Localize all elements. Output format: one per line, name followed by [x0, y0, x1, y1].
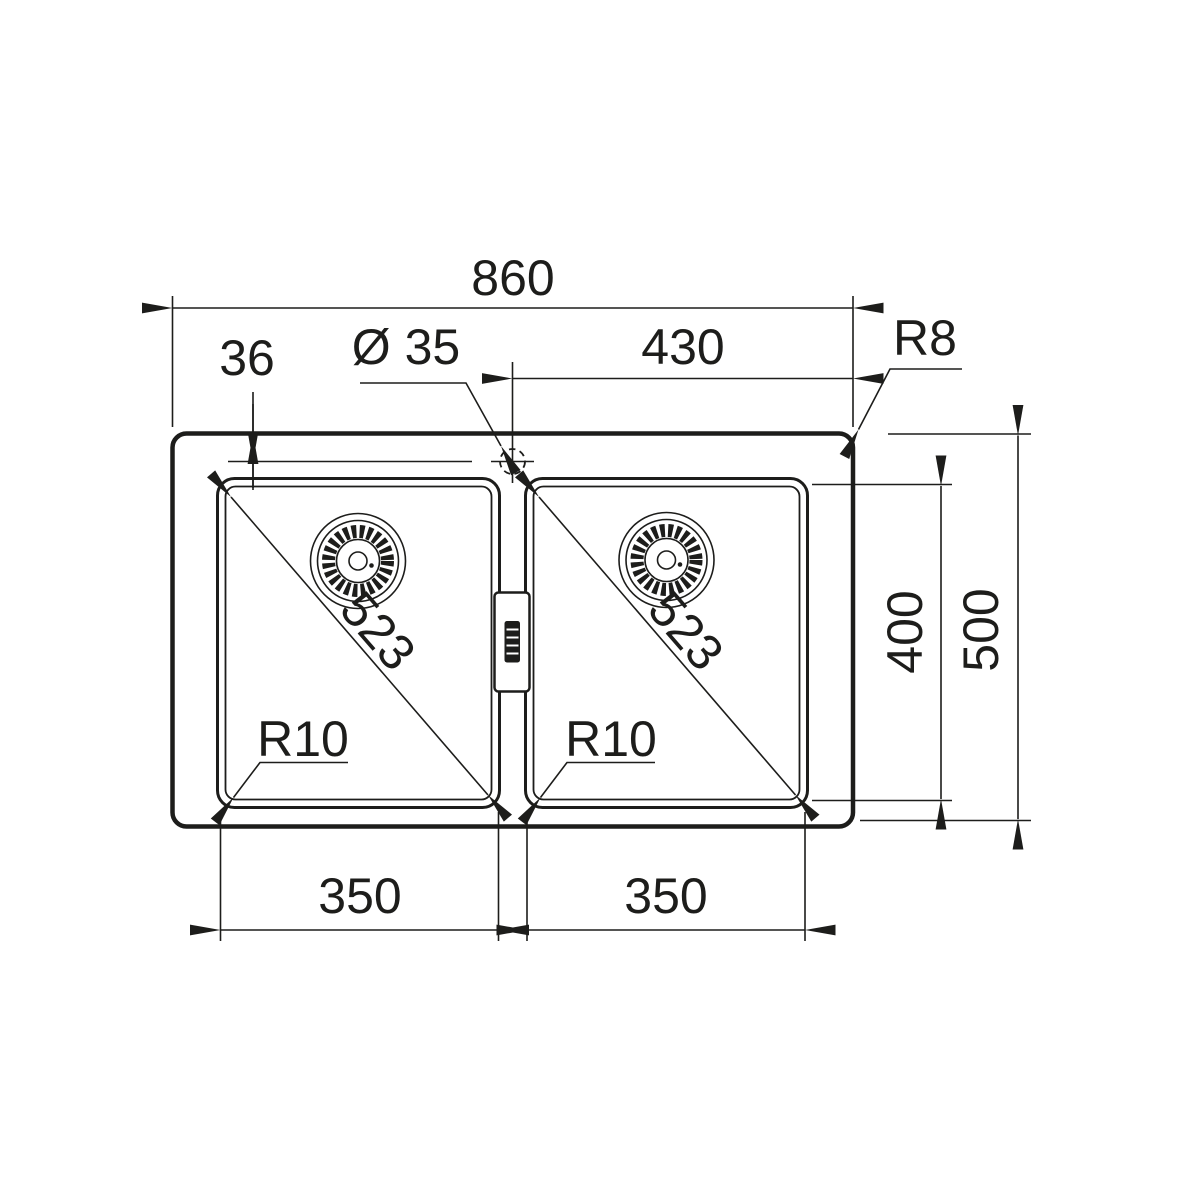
overflow-grille-icon — [505, 621, 521, 663]
dim-faucet-hole-diameter-label: Ø 35 — [352, 319, 460, 375]
dim-faucet-offset-label: 36 — [219, 330, 275, 386]
dim-overall-width-label: 860 — [471, 250, 554, 306]
dim-overall-depth-label: 500 — [953, 588, 1009, 671]
dim-rim-corner-radius: R8 — [859, 310, 963, 430]
dim-bowl-depth-label: 400 — [877, 590, 933, 673]
dim-faucet-hole-diameter: Ø 35 — [352, 319, 501, 446]
technical-drawing-svg: 860 430 R8 36 Ø 35 523 523 R10 R1 — [0, 0, 1200, 1200]
dim-left-bowl-width: 350 — [221, 812, 499, 941]
drawing-canvas: 860 430 R8 36 Ø 35 523 523 R10 R1 — [0, 0, 1200, 1200]
dim-left-bowl-width-label: 350 — [318, 868, 401, 924]
dim-rim-corner-radius-label: R8 — [893, 310, 957, 366]
dim-right-bowl-corner-radius-label: R10 — [565, 711, 657, 767]
dim-left-bowl-corner-radius-label: R10 — [257, 711, 349, 767]
dim-right-bowl-width-label: 350 — [624, 868, 707, 924]
dim-right-bowl-width: 350 — [527, 812, 805, 941]
overflow-divider — [495, 593, 530, 692]
dim-half-width-label: 430 — [641, 319, 724, 375]
